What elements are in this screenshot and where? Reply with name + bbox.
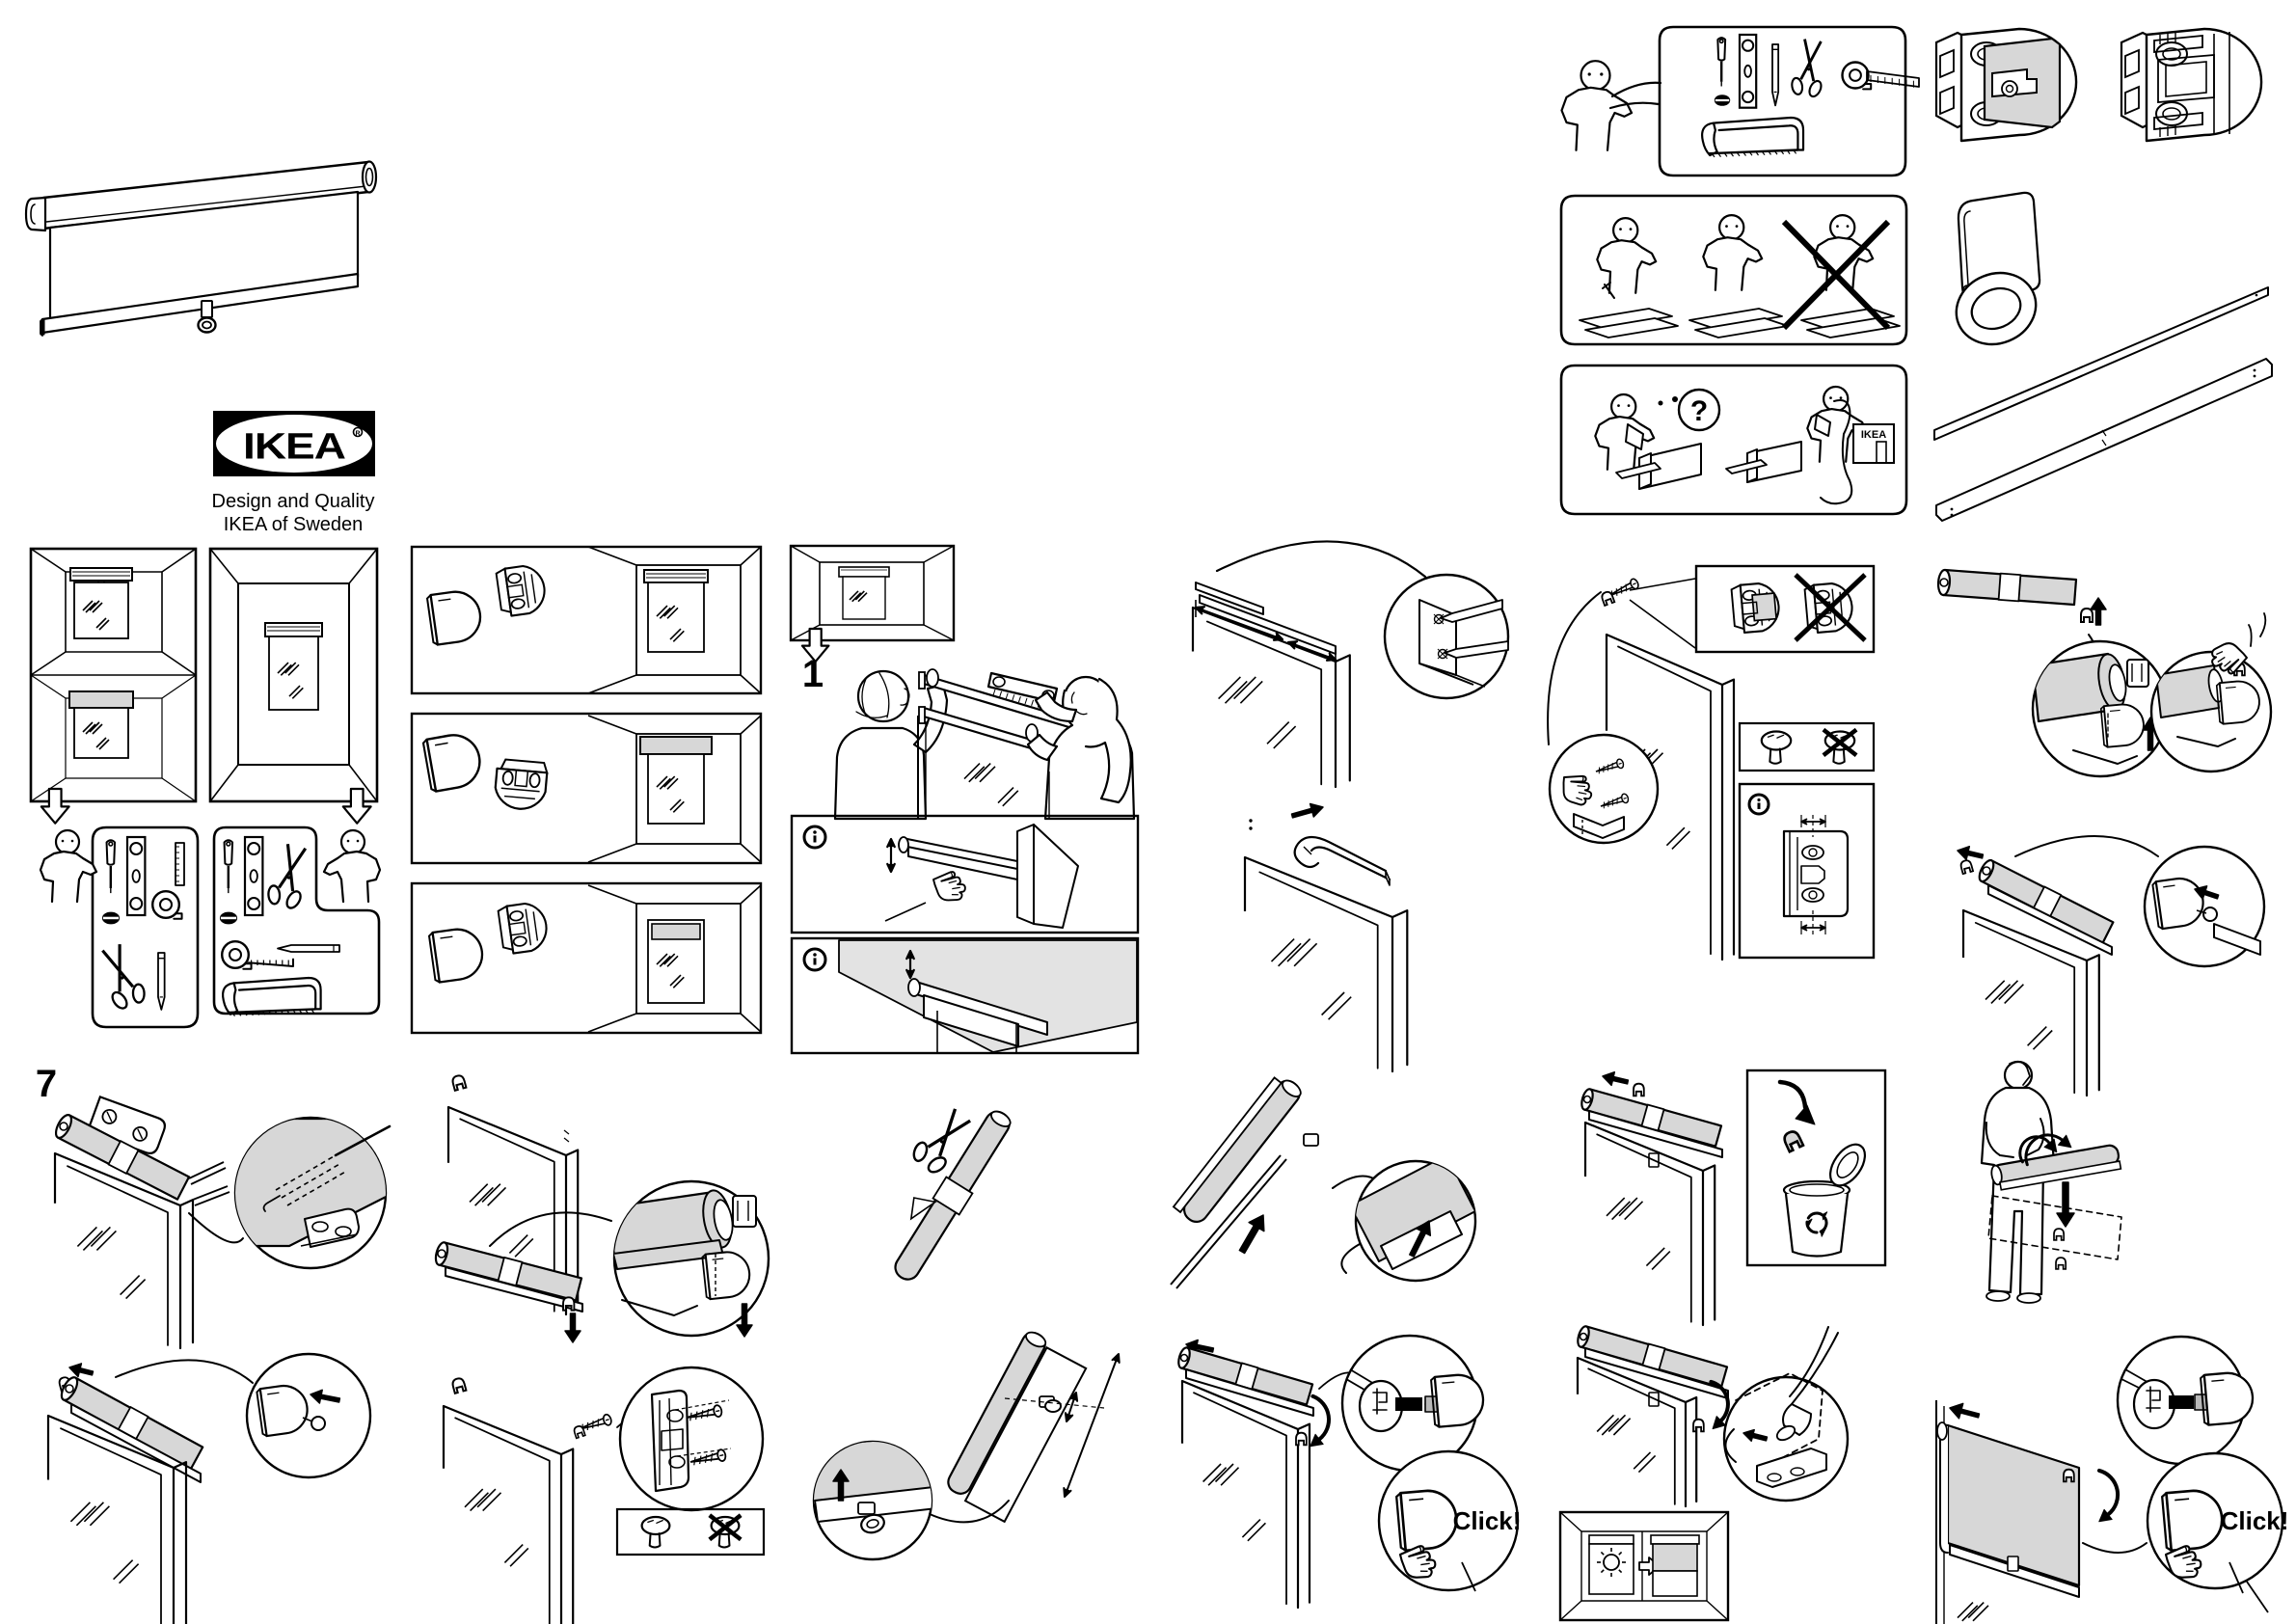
svg-text:Click!: Click! [1453, 1506, 1522, 1535]
svg-text:IKEA of Sweden: IKEA of Sweden [224, 514, 364, 535]
svg-text:R: R [355, 431, 360, 438]
svg-text:1: 1 [802, 653, 824, 695]
svg-text:?: ? [1690, 395, 1708, 427]
svg-text:IKEA: IKEA [243, 426, 345, 467]
svg-text:IKEA: IKEA [1861, 429, 1886, 441]
svg-text:7: 7 [36, 1063, 57, 1105]
svg-text:Click!: Click! [2221, 1506, 2289, 1535]
svg-text:Design and Quality: Design and Quality [212, 491, 375, 512]
